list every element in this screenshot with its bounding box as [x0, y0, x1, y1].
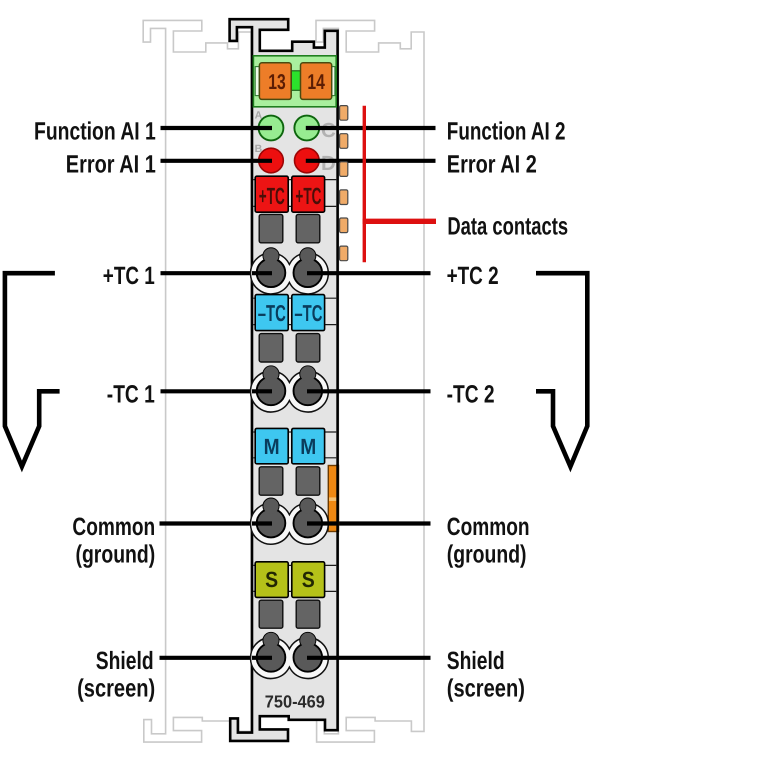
svg-text:(ground): (ground) [447, 540, 527, 568]
svg-text:M: M [300, 434, 316, 459]
svg-text:(screen): (screen) [77, 675, 155, 703]
svg-text:–TC: –TC [258, 300, 286, 326]
svg-text:–TC: –TC [294, 300, 322, 326]
svg-text:750-469: 750-469 [265, 692, 325, 712]
svg-text:Common: Common [447, 513, 530, 541]
svg-text:Common: Common [72, 513, 155, 541]
svg-text:Function AI 2: Function AI 2 [447, 117, 566, 145]
svg-text:S: S [302, 567, 315, 592]
svg-text:13: 13 [268, 70, 286, 94]
svg-text:Function AI 1: Function AI 1 [34, 117, 156, 145]
svg-text:S: S [265, 567, 278, 592]
svg-text:Error AI 1: Error AI 1 [66, 150, 156, 178]
svg-text:Shield: Shield [447, 647, 505, 675]
svg-text:-TC 1: -TC 1 [107, 381, 155, 409]
svg-text:C: C [321, 119, 336, 142]
svg-text:M: M [264, 434, 280, 459]
svg-text:Error AI 2: Error AI 2 [447, 150, 537, 178]
svg-text:(ground): (ground) [76, 540, 156, 568]
svg-text:+TC 2: +TC 2 [447, 262, 499, 290]
svg-text:+TC: +TC [259, 183, 285, 209]
svg-text:14: 14 [307, 70, 325, 94]
svg-text:+TC 1: +TC 1 [103, 262, 155, 290]
svg-text:D: D [321, 152, 336, 175]
svg-text:(screen): (screen) [447, 675, 525, 703]
svg-text:Shield: Shield [96, 647, 154, 675]
svg-text:+TC: +TC [295, 183, 321, 209]
svg-text:Data contacts: Data contacts [447, 213, 568, 241]
svg-text:-TC 2: -TC 2 [447, 381, 495, 409]
